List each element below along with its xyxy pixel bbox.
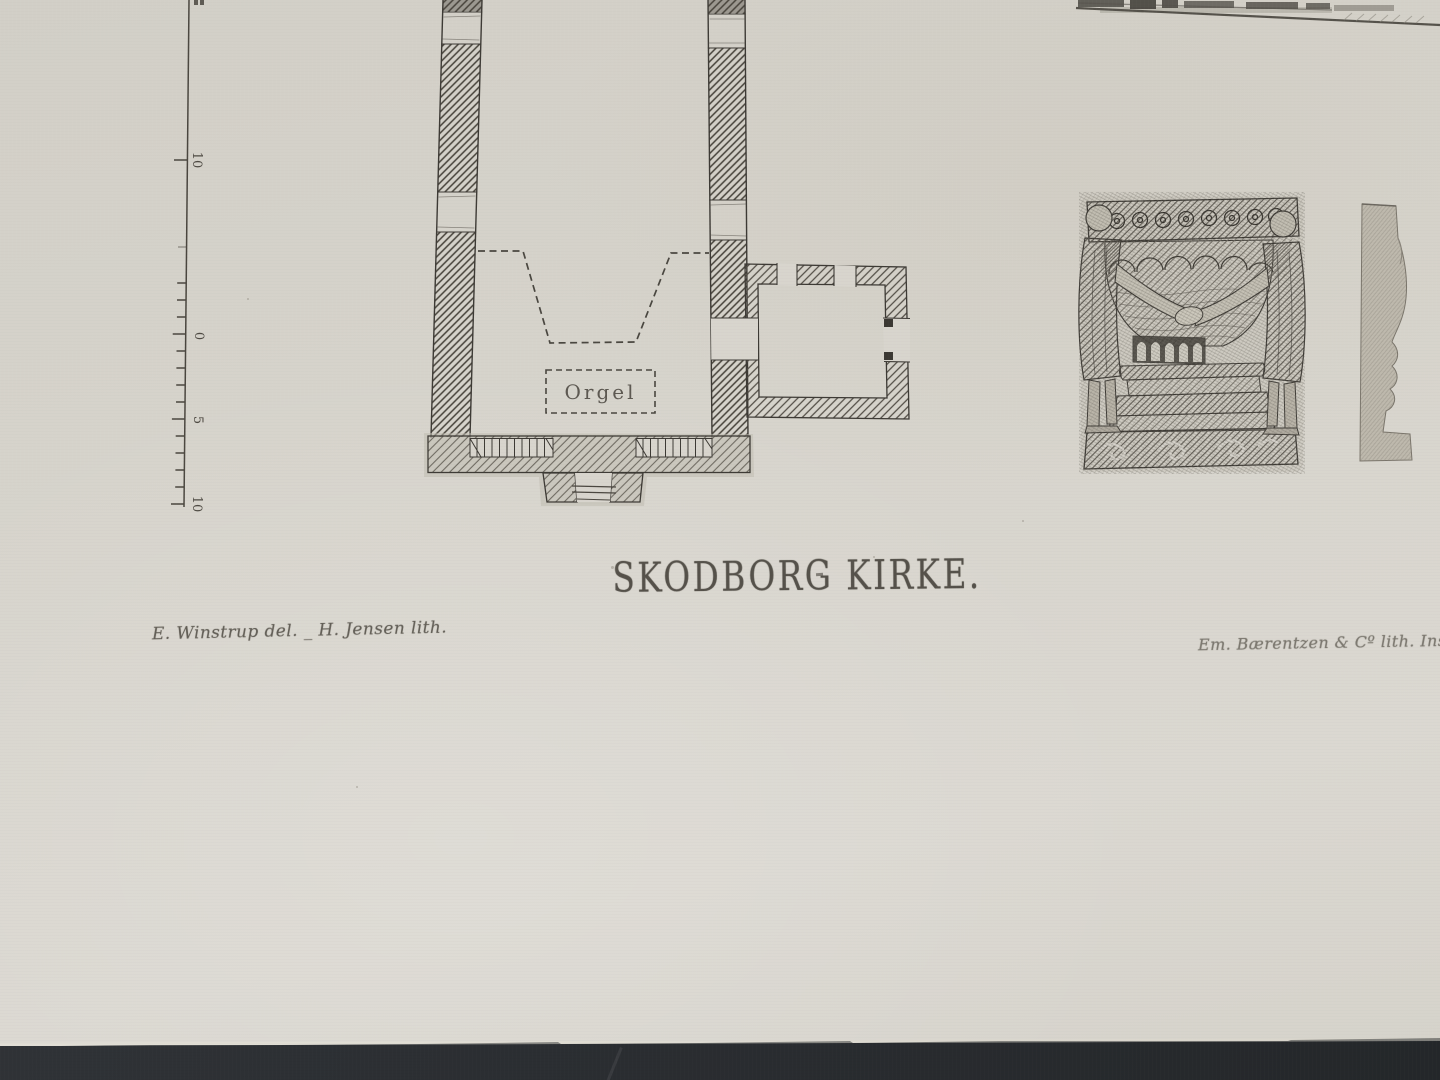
- lithograph-paper: 10 0 5 10: [0, 0, 1440, 1047]
- photo-of-lithograph-plate: 10 0 5 10: [0, 0, 1440, 1080]
- orgel-label: Orgel: [546, 370, 655, 413]
- chapel: [745, 263, 910, 419]
- organ-loft-dashed-outline: [478, 251, 709, 343]
- tower-wall-and-porch: [424, 433, 754, 506]
- clipped-scale-label: [200, 0, 204, 5]
- paper-speck: [611, 566, 614, 569]
- scale-label: 10: [189, 496, 204, 513]
- scale-bar: 10 0 5 10: [150, 0, 230, 520]
- paper-speck: [356, 786, 358, 788]
- scale-label: 0: [191, 332, 206, 340]
- church-floor-plan: [400, 0, 930, 520]
- credit-printer: Em. Bærentzen & Cº lith. Inst.: [1198, 631, 1440, 655]
- elevation-base-fragment: [1060, 0, 1440, 34]
- plate-title: SKODBORG KIRKE.: [612, 550, 982, 602]
- nave-chapel-doorway: [711, 318, 758, 360]
- credit-artist: E. Winstrup del. _ H. Jensen lith.: [152, 618, 447, 645]
- paper-speck: [247, 298, 249, 300]
- nave-left-wall: [431, 0, 482, 437]
- nave-right-wall: [708, 0, 748, 437]
- scale-bar-line: [171, 0, 189, 507]
- scale-label: 5: [190, 416, 205, 424]
- baptismal-font-drawing: [1065, 180, 1317, 480]
- scale-label: 10: [189, 152, 204, 169]
- title-separator-mark: [816, 573, 823, 576]
- paper-speck: [1022, 520, 1024, 522]
- moulding-profile-drawing: [1345, 192, 1440, 474]
- clipped-scale-label: [194, 0, 198, 5]
- paper-speck: [873, 556, 875, 558]
